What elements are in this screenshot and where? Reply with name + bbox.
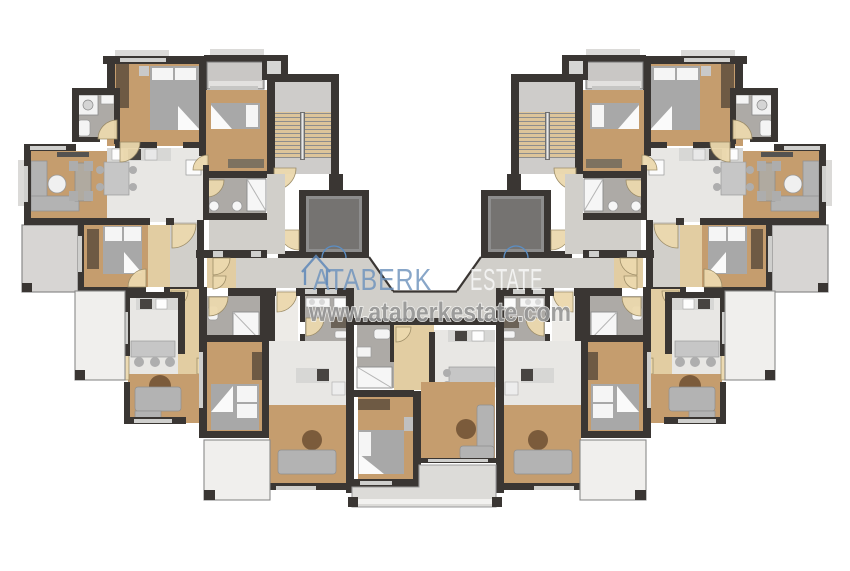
svg-text:ATABERK: ATABERK xyxy=(313,262,432,297)
svg-text:ESTATE: ESTATE xyxy=(470,262,543,297)
svg-text:www.ataberkestate.com: www.ataberkestate.com xyxy=(308,297,571,327)
